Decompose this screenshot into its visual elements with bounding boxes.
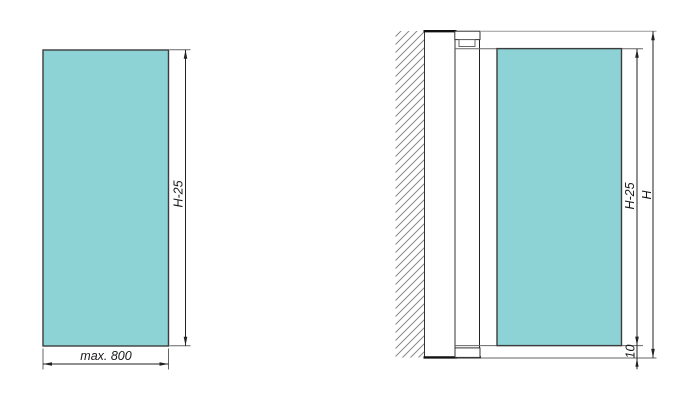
glass-panel-front bbox=[43, 50, 169, 346]
left-view: H-25 max. 800 bbox=[43, 50, 191, 370]
wall-hatch bbox=[396, 31, 426, 358]
drawing-svg: H-25 max. 800 H-25 bbox=[0, 0, 695, 400]
bottom-gap-label: 10 bbox=[623, 345, 637, 359]
h25-label-left: H-25 bbox=[171, 180, 185, 207]
right-view: H-25 H 10 bbox=[396, 31, 657, 369]
glass-panel-side bbox=[497, 49, 622, 346]
total-height-label: H bbox=[640, 190, 654, 200]
technical-drawing-canvas: H-25 max. 800 H-25 bbox=[0, 0, 695, 400]
max-width-label: max. 800 bbox=[80, 349, 131, 363]
bottom-pivot-bracket bbox=[455, 348, 480, 358]
top-pivot-bracket-inner bbox=[459, 40, 475, 47]
h25-label-right: H-25 bbox=[623, 182, 637, 209]
wall-profile bbox=[425, 31, 456, 358]
top-pivot-bracket-outer bbox=[455, 31, 480, 39]
